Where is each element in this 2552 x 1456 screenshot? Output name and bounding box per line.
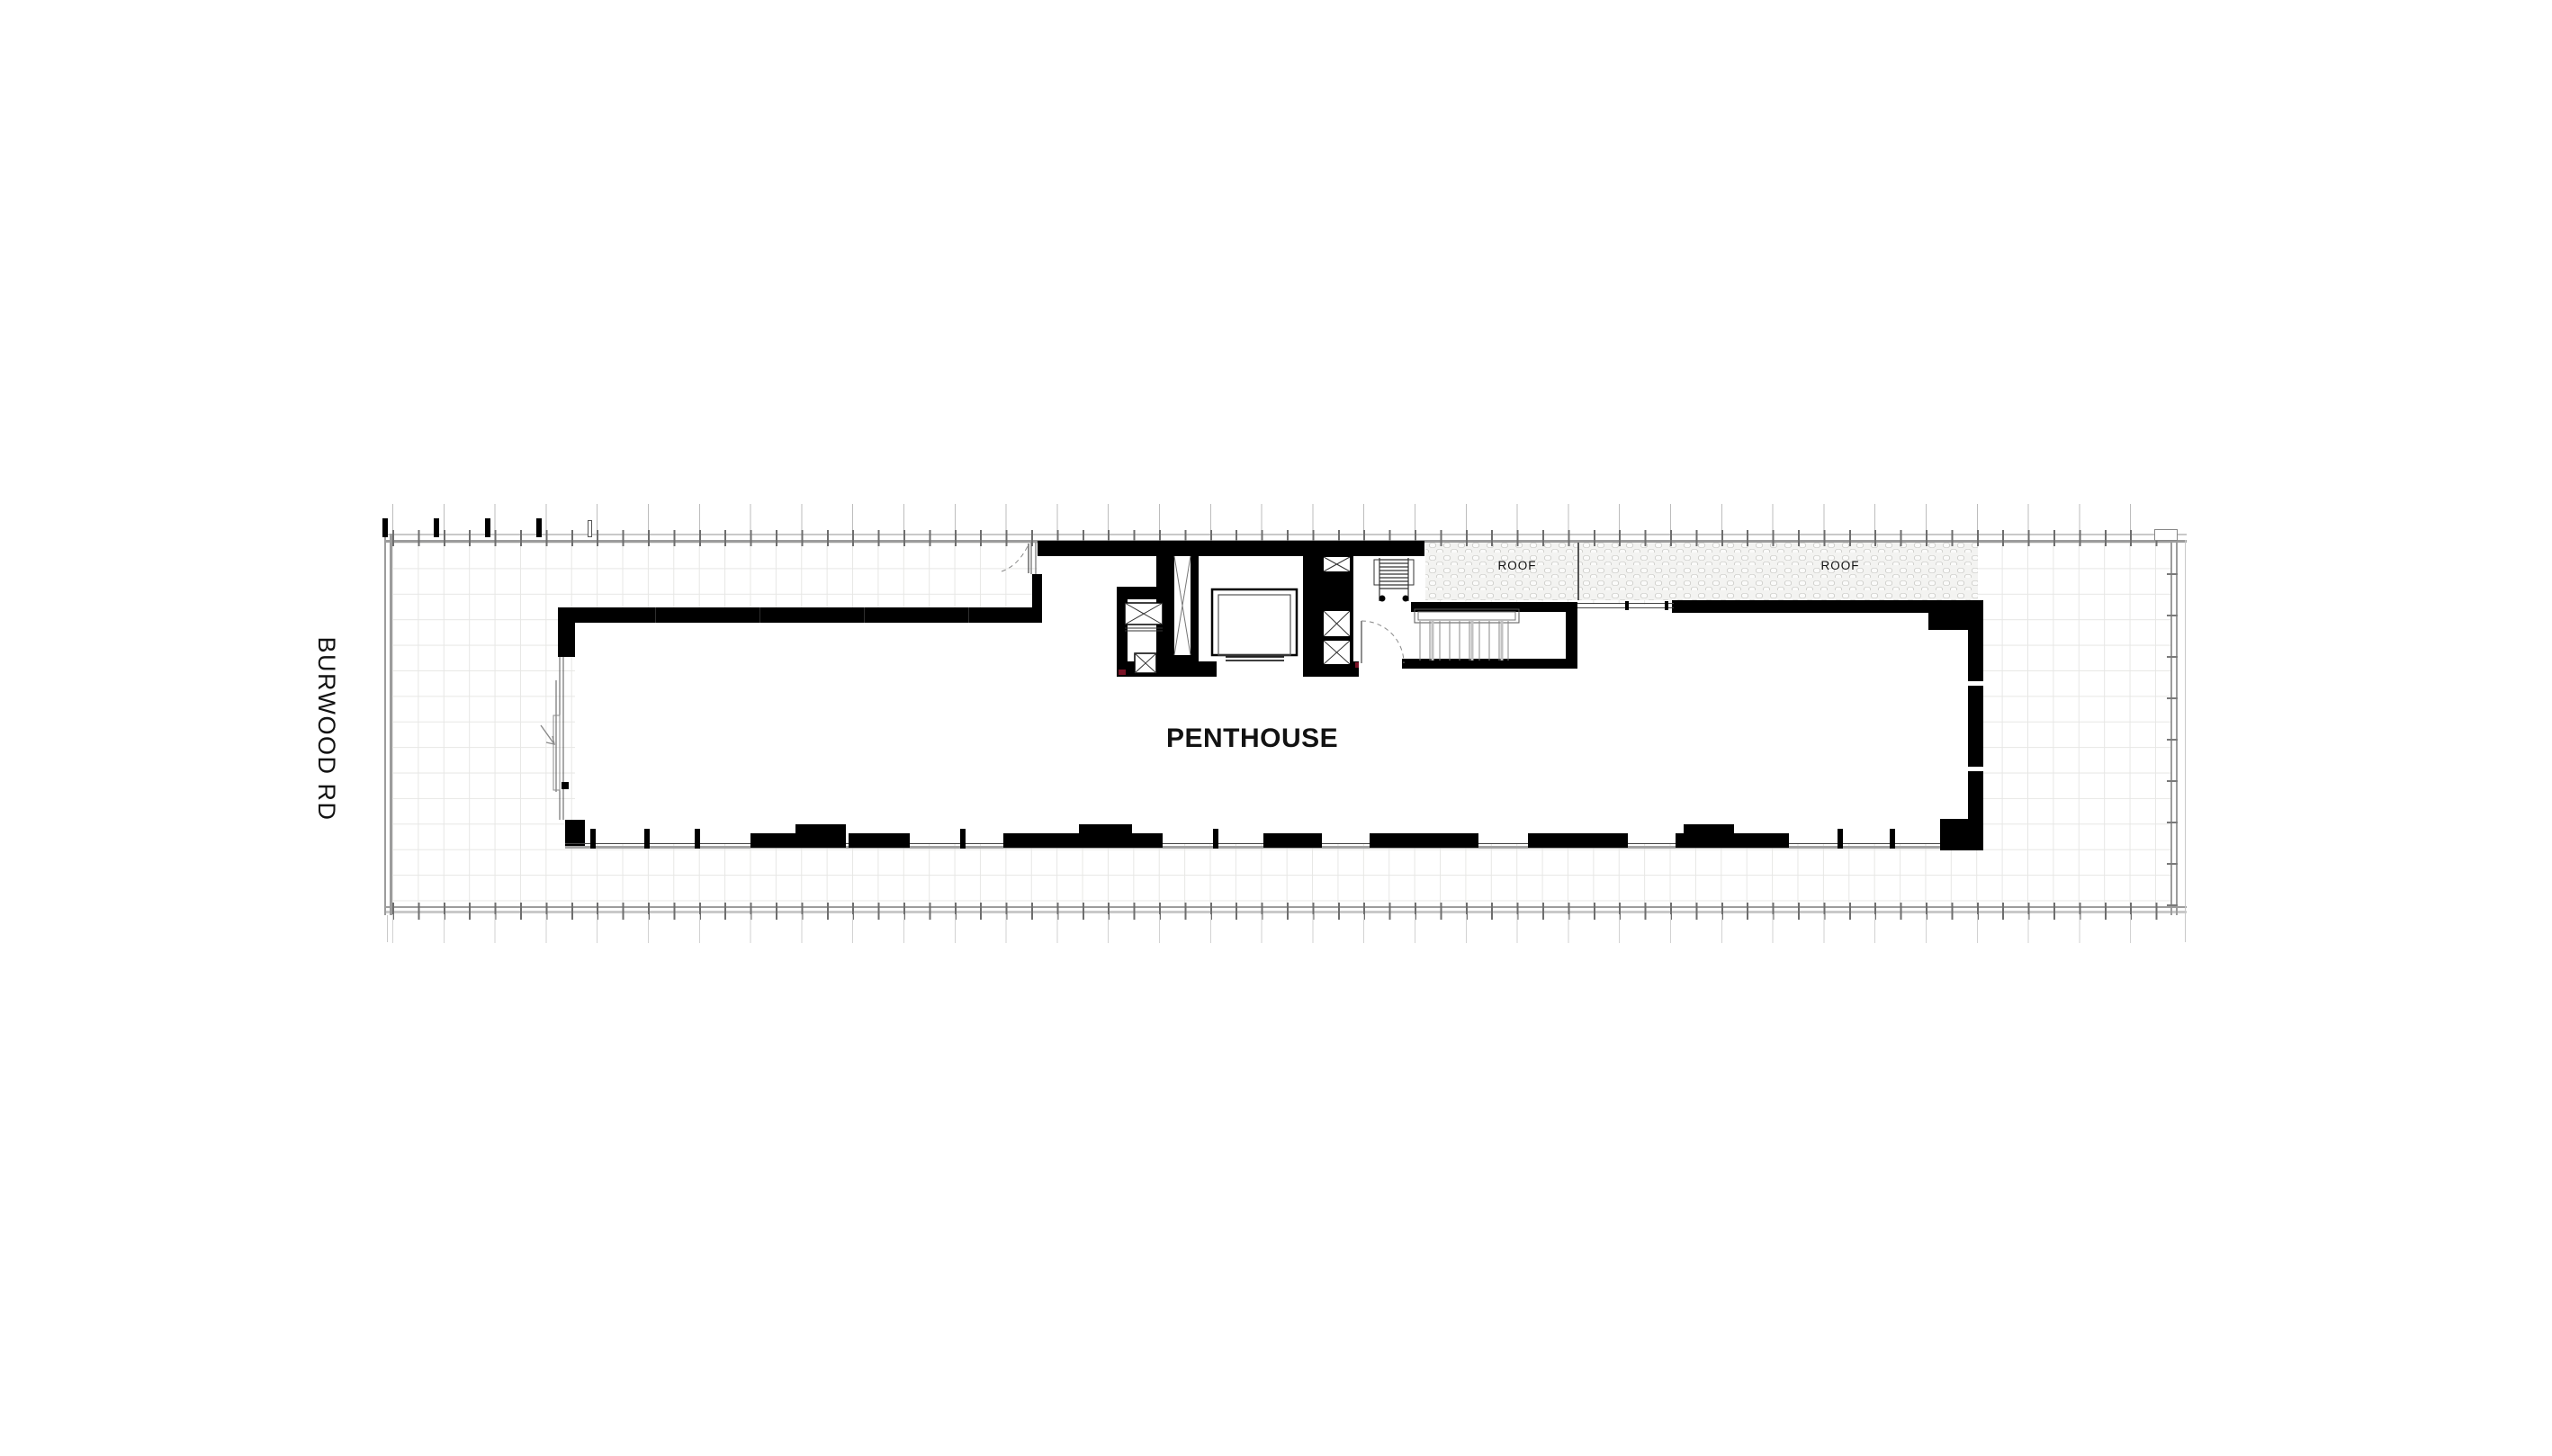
lift-car-icon	[1212, 589, 1297, 661]
street-label: BURWOOD RD	[312, 612, 341, 846]
west-glazing-mullion	[562, 782, 569, 789]
duct-shaft-x-icon	[1174, 556, 1191, 655]
gate-door-icon	[1002, 543, 1036, 574]
west-glazing	[553, 657, 563, 820]
roof-ladder-icon	[1374, 558, 1414, 601]
riser-x-icon	[1324, 557, 1350, 664]
stair-landing	[1415, 609, 1519, 623]
roof-label-west: ROOF	[1495, 559, 1540, 573]
ladder-post	[1403, 596, 1409, 602]
ladder-post	[1379, 596, 1386, 602]
stair-flight	[1420, 621, 1508, 661]
roof-label-east: ROOF	[1818, 559, 1863, 573]
floor-plan-canvas: BURWOOD RD PENTHOUSE ROOF ROOF	[0, 0, 2552, 1456]
penthouse-label: PENTHOUSE	[1166, 724, 1338, 754]
stair-door-icon	[1361, 621, 1404, 663]
entry-arrow-icon	[541, 725, 554, 744]
